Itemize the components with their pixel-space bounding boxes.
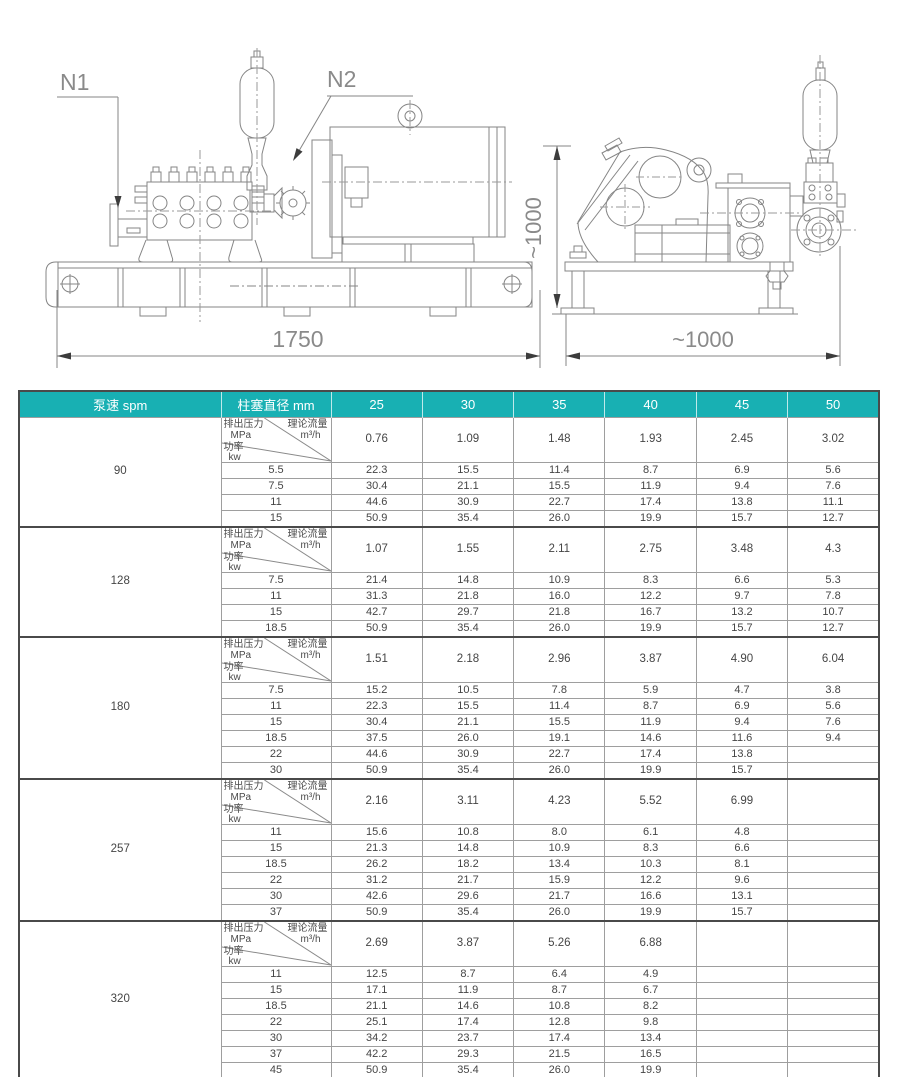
theoretical-flow-value: 2.16 <box>331 779 422 825</box>
discharge-pressure-value: 15 <box>221 715 331 731</box>
theoretical-flow-value: 2.11 <box>514 527 605 573</box>
power-value: 21.5 <box>514 1047 605 1063</box>
power-value: 10.9 <box>514 841 605 857</box>
flow-row: 257 排出压力 MPa 理论流量 m³/h 功率 kw 2.163.114.2… <box>19 779 879 825</box>
power-value: 9.7 <box>696 589 787 605</box>
corner-pressure-label: 排出压力 <box>224 782 264 792</box>
power-value: 8.2 <box>605 999 696 1015</box>
power-value <box>788 747 879 763</box>
theoretical-flow-value: 3.48 <box>696 527 787 573</box>
power-value: 42.2 <box>331 1047 422 1063</box>
discharge-pressure-value: 11 <box>221 589 331 605</box>
corner-flow-unit: m³/h <box>301 541 321 551</box>
theoretical-flow-value: 2.69 <box>331 921 422 967</box>
corner-pressure-label: 排出压力 <box>224 420 264 430</box>
power-value: 11.9 <box>422 983 513 999</box>
discharge-pressure-value: 15 <box>221 511 331 528</box>
corner-pressure-unit: MPa <box>231 935 252 945</box>
power-value: 8.3 <box>605 841 696 857</box>
power-value: 11.1 <box>788 495 879 511</box>
theoretical-flow-value: 6.88 <box>605 921 696 967</box>
power-value: 35.4 <box>422 621 513 638</box>
dim-length-label: 1750 <box>272 326 323 352</box>
power-value: 9.4 <box>696 479 787 495</box>
dim-arrow <box>57 353 71 360</box>
power-value: 8.7 <box>422 967 513 983</box>
power-value: 22.3 <box>331 699 422 715</box>
diameter-value-header: 30 <box>422 391 513 418</box>
power-value: 50.9 <box>331 621 422 638</box>
power-value <box>788 967 879 983</box>
power-value: 15.6 <box>331 825 422 841</box>
dim-arrow <box>566 353 580 360</box>
power-value: 30.4 <box>331 479 422 495</box>
power-value <box>788 905 879 922</box>
power-value: 8.7 <box>605 463 696 479</box>
dim-width-label: ~1000 <box>672 327 734 352</box>
corner-power-unit: kw <box>229 957 241 966</box>
theoretical-flow-value: 2.96 <box>514 637 605 683</box>
power-value <box>788 889 879 905</box>
power-value: 15.5 <box>422 463 513 479</box>
power-value: 26.0 <box>514 1063 605 1077</box>
power-value <box>696 1015 787 1031</box>
power-value: 5.6 <box>788 463 879 479</box>
power-value: 12.2 <box>605 589 696 605</box>
power-value: 17.4 <box>605 495 696 511</box>
theoretical-flow-value: 6.04 <box>788 637 879 683</box>
power-value: 44.6 <box>331 495 422 511</box>
discharge-pressure-value: 22 <box>221 747 331 763</box>
power-value: 21.1 <box>331 999 422 1015</box>
power-value: 12.2 <box>605 873 696 889</box>
diameter-value-header: 45 <box>696 391 787 418</box>
power-value: 17.4 <box>605 747 696 763</box>
power-value: 10.9 <box>514 573 605 589</box>
matrix-corner-cell: 排出压力 MPa 理论流量 m³/h 功率 kw <box>222 780 331 824</box>
theoretical-flow-value: 4.23 <box>514 779 605 825</box>
power-value: 7.8 <box>788 589 879 605</box>
power-value: 10.3 <box>605 857 696 873</box>
diameter-value-header: 25 <box>331 391 422 418</box>
power-value: 35.4 <box>422 905 513 922</box>
power-value: 50.9 <box>331 1063 422 1077</box>
theoretical-flow-value: 4.90 <box>696 637 787 683</box>
theoretical-flow-value: 1.51 <box>331 637 422 683</box>
matrix-corner-cell: 排出压力 MPa 理论流量 m³/h 功率 kw <box>222 528 331 572</box>
flow-row: 90 排出压力 MPa 理论流量 m³/h 功率 kw 0.761.091.48… <box>19 418 879 463</box>
flow-row: 128 排出压力 MPa 理论流量 m³/h 功率 kw 1.071.552.1… <box>19 527 879 573</box>
flow-row: 180 排出压力 MPa 理论流量 m³/h 功率 kw 1.512.182.9… <box>19 637 879 683</box>
power-value: 6.4 <box>514 967 605 983</box>
power-value: 35.4 <box>422 1063 513 1077</box>
power-value: 17.1 <box>331 983 422 999</box>
power-value: 26.2 <box>331 857 422 873</box>
corner-pressure-label: 排出压力 <box>224 530 264 540</box>
corner-power-unit: kw <box>229 453 241 462</box>
power-value: 26.0 <box>514 763 605 780</box>
power-value: 10.7 <box>788 605 879 621</box>
matrix-corner-cell: 排出压力 MPa 理论流量 m³/h 功率 kw <box>222 922 331 966</box>
power-value: 17.4 <box>514 1031 605 1047</box>
corner-power-unit: kw <box>229 815 241 824</box>
discharge-pressure-value: 45 <box>221 1063 331 1077</box>
power-value: 26.0 <box>514 511 605 528</box>
power-value: 19.9 <box>605 621 696 638</box>
corner-pressure-unit: MPa <box>231 793 252 803</box>
label-n1: N1 <box>60 69 89 95</box>
power-value <box>696 983 787 999</box>
discharge-pressure-value: 11 <box>221 495 331 511</box>
diameter-header: 柱塞直径 mm <box>221 391 331 418</box>
discharge-pressure-value: 18.5 <box>221 731 331 747</box>
pump-speed-value: 128 <box>19 527 221 637</box>
power-value: 8.1 <box>696 857 787 873</box>
discharge-pressure-value: 5.5 <box>221 463 331 479</box>
corner-flow-unit: m³/h <box>301 935 321 945</box>
diameter-value-header: 50 <box>788 391 879 418</box>
table-header-row: 泵速 spm 柱塞直径 mm 253035404550 <box>19 391 879 418</box>
power-value: 15.7 <box>696 511 787 528</box>
power-value: 30.9 <box>422 495 513 511</box>
power-value: 21.8 <box>514 605 605 621</box>
power-value: 9.4 <box>788 731 879 747</box>
power-value: 30.9 <box>422 747 513 763</box>
power-value: 21.7 <box>514 889 605 905</box>
power-value: 15.2 <box>331 683 422 699</box>
power-value <box>788 763 879 780</box>
discharge-pressure-value: 7.5 <box>221 573 331 589</box>
power-value: 8.3 <box>605 573 696 589</box>
corner-pressure-unit: MPa <box>231 431 252 441</box>
power-value: 4.8 <box>696 825 787 841</box>
power-value: 11.6 <box>696 731 787 747</box>
corner-flow-unit: m³/h <box>301 431 321 441</box>
power-value: 15.5 <box>514 715 605 731</box>
diameter-value-header: 35 <box>514 391 605 418</box>
power-value: 25.1 <box>331 1015 422 1031</box>
power-value: 42.6 <box>331 889 422 905</box>
power-value: 6.6 <box>696 841 787 857</box>
discharge-pressure-value: 7.5 <box>221 479 331 495</box>
power-value: 4.7 <box>696 683 787 699</box>
power-value: 6.6 <box>696 573 787 589</box>
power-value <box>788 841 879 857</box>
power-value: 13.8 <box>696 495 787 511</box>
power-value: 35.4 <box>422 511 513 528</box>
discharge-pressure-value: 30 <box>221 1031 331 1047</box>
corner-flow-label: 理论流量 <box>288 782 328 792</box>
corner-pressure-label: 排出压力 <box>224 924 264 934</box>
discharge-pressure-value: 15 <box>221 983 331 999</box>
power-value: 16.6 <box>605 889 696 905</box>
corner-pressure-unit: MPa <box>231 541 252 551</box>
power-value: 6.1 <box>605 825 696 841</box>
diameter-value-header: 40 <box>605 391 696 418</box>
power-value: 50.9 <box>331 511 422 528</box>
power-value: 16.5 <box>605 1047 696 1063</box>
power-value: 13.8 <box>696 747 787 763</box>
power-value: 9.4 <box>696 715 787 731</box>
discharge-pressure-value: 22 <box>221 873 331 889</box>
theoretical-flow-value <box>696 921 787 967</box>
power-value: 5.9 <box>605 683 696 699</box>
power-value: 13.4 <box>514 857 605 873</box>
power-value: 37.5 <box>331 731 422 747</box>
theoretical-flow-value: 5.26 <box>514 921 605 967</box>
power-value: 19.9 <box>605 1063 696 1077</box>
theoretical-flow-value: 5.52 <box>605 779 696 825</box>
power-value: 35.4 <box>422 763 513 780</box>
theoretical-flow-value: 4.3 <box>788 527 879 573</box>
datasheet-page: N1 N2 1750 <box>0 0 900 1077</box>
power-value: 30.4 <box>331 715 422 731</box>
power-value: 21.1 <box>422 715 513 731</box>
front-view-annotations: N1 N2 1750 <box>57 66 540 368</box>
power-value: 16.7 <box>605 605 696 621</box>
power-value: 7.6 <box>788 715 879 731</box>
power-value <box>696 1047 787 1063</box>
theoretical-flow-value: 3.87 <box>422 921 513 967</box>
power-value: 17.4 <box>422 1015 513 1031</box>
power-value <box>696 1063 787 1077</box>
power-value: 15.7 <box>696 621 787 638</box>
power-value: 8.7 <box>514 983 605 999</box>
corner-pressure-unit: MPa <box>231 651 252 661</box>
theoretical-flow-value: 0.76 <box>331 418 422 463</box>
matrix-corner: 排出压力 MPa 理论流量 m³/h 功率 kw <box>221 921 331 967</box>
power-value: 10.5 <box>422 683 513 699</box>
power-value: 7.8 <box>514 683 605 699</box>
power-value: 19.9 <box>605 511 696 528</box>
power-value: 12.7 <box>788 511 879 528</box>
theoretical-flow-value: 3.11 <box>422 779 513 825</box>
power-value <box>788 825 879 841</box>
power-value: 14.8 <box>422 573 513 589</box>
matrix-corner: 排出压力 MPa 理论流量 m³/h 功率 kw <box>221 779 331 825</box>
power-value: 11.9 <box>605 715 696 731</box>
flow-row: 320 排出压力 MPa 理论流量 m³/h 功率 kw 2.693.875.2… <box>19 921 879 967</box>
power-value: 11.9 <box>605 479 696 495</box>
corner-pressure-label: 排出压力 <box>224 640 264 650</box>
power-value <box>788 1031 879 1047</box>
pump-speed-value: 257 <box>19 779 221 921</box>
power-value: 6.9 <box>696 463 787 479</box>
corner-flow-label: 理论流量 <box>288 420 328 430</box>
power-value: 5.3 <box>788 573 879 589</box>
corner-flow-label: 理论流量 <box>288 530 328 540</box>
corner-flow-unit: m³/h <box>301 651 321 661</box>
pump-speed-value: 180 <box>19 637 221 779</box>
discharge-pressure-value: 11 <box>221 825 331 841</box>
power-value: 8.7 <box>605 699 696 715</box>
theoretical-flow-value: 1.48 <box>514 418 605 463</box>
discharge-pressure-value: 18.5 <box>221 857 331 873</box>
power-value: 13.1 <box>696 889 787 905</box>
spec-table: 泵速 spm 柱塞直径 mm 253035404550 90 排出压力 MPa … <box>18 390 880 1077</box>
dim-arrow <box>826 353 840 360</box>
matrix-corner-cell: 排出压力 MPa 理论流量 m³/h 功率 kw <box>222 638 331 682</box>
power-value: 21.4 <box>331 573 422 589</box>
discharge-pressure-value: 15 <box>221 605 331 621</box>
power-value: 50.9 <box>331 905 422 922</box>
matrix-corner: 排出压力 MPa 理论流量 m³/h 功率 kw <box>221 418 331 463</box>
matrix-corner: 排出压力 MPa 理论流量 m³/h 功率 kw <box>221 637 331 683</box>
discharge-pressure-value: 37 <box>221 905 331 922</box>
discharge-pressure-value: 15 <box>221 841 331 857</box>
power-value <box>696 967 787 983</box>
power-value: 29.3 <box>422 1047 513 1063</box>
power-value: 13.2 <box>696 605 787 621</box>
dim-arrow <box>554 146 561 160</box>
theoretical-flow-value <box>788 921 879 967</box>
corner-power-unit: kw <box>229 673 241 682</box>
corner-flow-label: 理论流量 <box>288 640 328 650</box>
power-value: 10.8 <box>514 999 605 1015</box>
discharge-pressure-value: 7.5 <box>221 683 331 699</box>
power-value: 15.9 <box>514 873 605 889</box>
theoretical-flow-value: 3.02 <box>788 418 879 463</box>
power-value: 22.7 <box>514 495 605 511</box>
power-value: 9.6 <box>696 873 787 889</box>
power-value: 12.7 <box>788 621 879 638</box>
power-value: 16.0 <box>514 589 605 605</box>
power-value: 19.9 <box>605 905 696 922</box>
power-value: 29.6 <box>422 889 513 905</box>
power-value: 22.3 <box>331 463 422 479</box>
theoretical-flow-value <box>788 779 879 825</box>
power-value: 26.0 <box>422 731 513 747</box>
power-value: 11.4 <box>514 463 605 479</box>
power-value: 29.7 <box>422 605 513 621</box>
pump-speed-value: 90 <box>19 418 221 528</box>
power-value: 3.8 <box>788 683 879 699</box>
power-value: 11.4 <box>514 699 605 715</box>
power-value: 12.5 <box>331 967 422 983</box>
theoretical-flow-value: 2.45 <box>696 418 787 463</box>
power-value: 18.2 <box>422 857 513 873</box>
power-value: 21.8 <box>422 589 513 605</box>
power-value: 19.9 <box>605 763 696 780</box>
discharge-pressure-value: 22 <box>221 1015 331 1031</box>
power-value: 21.7 <box>422 873 513 889</box>
pump-side-view-drawing <box>552 55 858 314</box>
power-value: 22.7 <box>514 747 605 763</box>
discharge-pressure-value: 30 <box>221 763 331 780</box>
power-value: 23.7 <box>422 1031 513 1047</box>
power-value: 6.9 <box>696 699 787 715</box>
power-value: 7.6 <box>788 479 879 495</box>
pump-speed-value: 320 <box>19 921 221 1077</box>
power-value <box>696 999 787 1015</box>
power-value: 42.7 <box>331 605 422 621</box>
power-value: 21.3 <box>331 841 422 857</box>
pump-front-view-drawing <box>46 48 532 322</box>
power-value: 15.5 <box>422 699 513 715</box>
power-value <box>788 1047 879 1063</box>
power-value <box>788 1063 879 1077</box>
dim-height-label: ~1000 <box>521 197 546 259</box>
theoretical-flow-value: 2.18 <box>422 637 513 683</box>
power-value: 21.1 <box>422 479 513 495</box>
power-value <box>788 873 879 889</box>
power-value <box>696 1031 787 1047</box>
power-value: 15.7 <box>696 905 787 922</box>
discharge-pressure-value: 11 <box>221 699 331 715</box>
power-value: 31.3 <box>331 589 422 605</box>
power-value <box>788 857 879 873</box>
power-value: 14.6 <box>605 731 696 747</box>
power-value: 50.9 <box>331 763 422 780</box>
corner-flow-label: 理论流量 <box>288 924 328 934</box>
label-n2: N2 <box>327 66 356 92</box>
power-value: 26.0 <box>514 905 605 922</box>
theoretical-flow-value: 1.93 <box>605 418 696 463</box>
power-value: 19.1 <box>514 731 605 747</box>
power-value: 5.6 <box>788 699 879 715</box>
technical-drawings: N1 N2 1750 <box>0 0 900 392</box>
power-value: 44.6 <box>331 747 422 763</box>
discharge-pressure-value: 30 <box>221 889 331 905</box>
discharge-pressure-value: 18.5 <box>221 621 331 638</box>
dim-arrow <box>554 294 561 308</box>
power-value <box>788 1015 879 1031</box>
dim-arrow <box>526 353 540 360</box>
corner-flow-unit: m³/h <box>301 793 321 803</box>
power-value: 14.8 <box>422 841 513 857</box>
theoretical-flow-value: 6.99 <box>696 779 787 825</box>
power-value: 34.2 <box>331 1031 422 1047</box>
matrix-corner-cell: 排出压力 MPa 理论流量 m³/h 功率 kw <box>222 418 331 462</box>
theoretical-flow-value: 3.87 <box>605 637 696 683</box>
power-value: 15.5 <box>514 479 605 495</box>
power-value: 31.2 <box>331 873 422 889</box>
theoretical-flow-value: 1.09 <box>422 418 513 463</box>
power-value: 8.0 <box>514 825 605 841</box>
power-value: 6.7 <box>605 983 696 999</box>
power-value: 4.9 <box>605 967 696 983</box>
corner-power-unit: kw <box>229 563 241 572</box>
power-value: 13.4 <box>605 1031 696 1047</box>
power-value: 9.8 <box>605 1015 696 1031</box>
n1-leader-arrow <box>115 196 122 208</box>
power-value: 10.8 <box>422 825 513 841</box>
power-value <box>788 983 879 999</box>
power-value: 15.7 <box>696 763 787 780</box>
theoretical-flow-value: 2.75 <box>605 527 696 573</box>
theoretical-flow-value: 1.55 <box>422 527 513 573</box>
power-value: 14.6 <box>422 999 513 1015</box>
discharge-pressure-value: 37 <box>221 1047 331 1063</box>
spec-table-body: 90 排出压力 MPa 理论流量 m³/h 功率 kw 0.761.091.48… <box>19 418 879 1077</box>
theoretical-flow-value: 1.07 <box>331 527 422 573</box>
discharge-pressure-value: 18.5 <box>221 999 331 1015</box>
power-value <box>788 999 879 1015</box>
matrix-corner: 排出压力 MPa 理论流量 m³/h 功率 kw <box>221 527 331 573</box>
n2-leader-arrow <box>293 148 303 161</box>
discharge-pressure-value: 11 <box>221 967 331 983</box>
power-value: 26.0 <box>514 621 605 638</box>
power-value: 12.8 <box>514 1015 605 1031</box>
speed-header: 泵速 spm <box>19 391 221 418</box>
